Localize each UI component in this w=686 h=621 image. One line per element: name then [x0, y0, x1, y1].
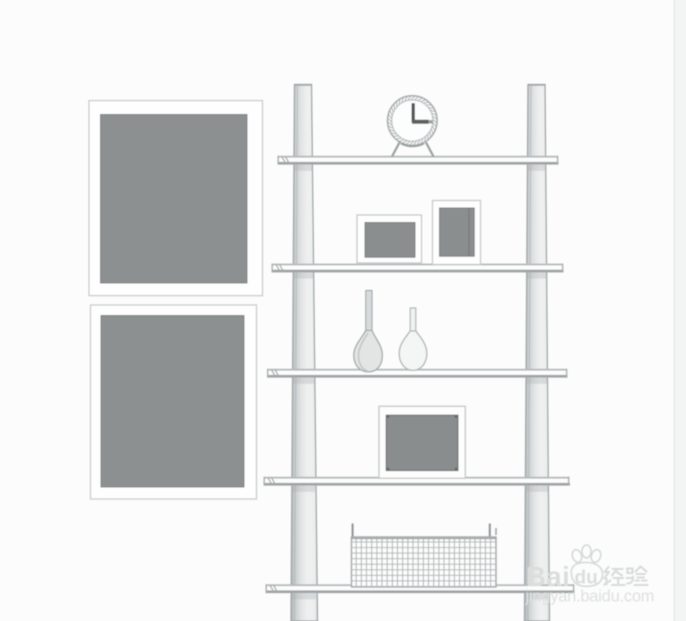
svg-text:jingyan.baidu.com: jingyan.baidu.com [525, 588, 655, 606]
svg-text:du: du [575, 568, 598, 589]
